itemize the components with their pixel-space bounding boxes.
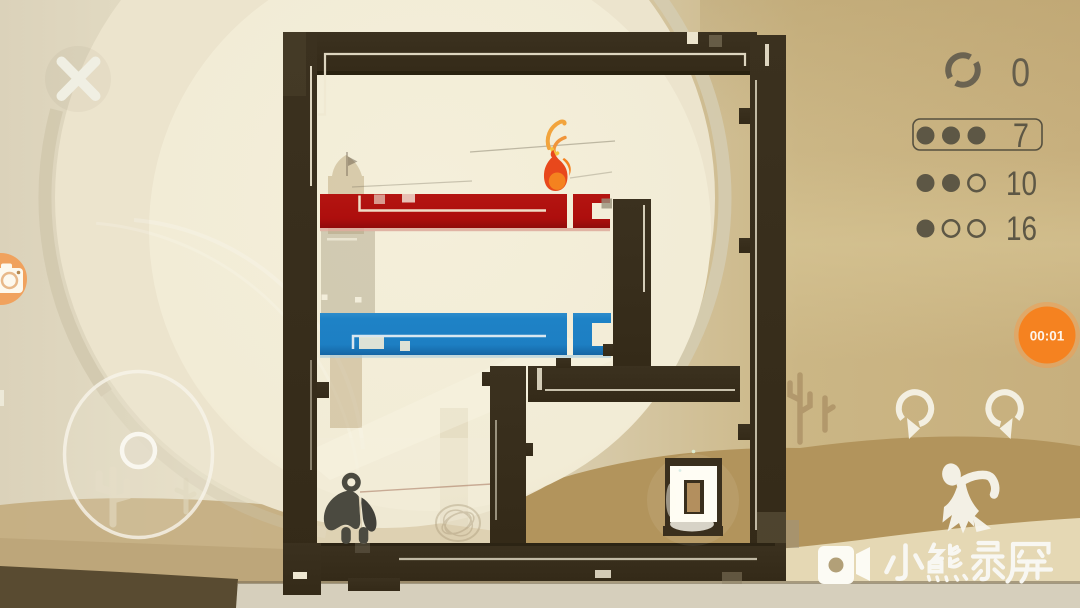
svg-text:0: 0 <box>1011 49 1030 94</box>
svg-text:7: 7 <box>1013 116 1029 155</box>
svg-text:10: 10 <box>1006 164 1037 202</box>
svg-text:00:01: 00:01 <box>1030 329 1065 344</box>
svg-text:16: 16 <box>1006 209 1037 247</box>
